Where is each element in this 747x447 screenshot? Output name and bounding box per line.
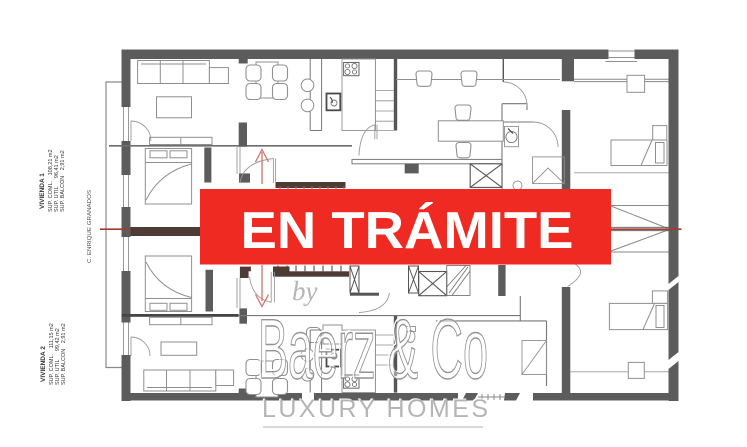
svg-text:Baerz & Co: Baerz & Co [258, 302, 488, 396]
svg-text:EN TRÁMITE: EN TRÁMITE [241, 202, 574, 260]
svg-text:SUP. BALCON 2,91 m2: SUP. BALCON 2,91 m2 [61, 323, 67, 385]
svg-text:SUP. BALCON 2,91 m2: SUP. BALCON 2,91 m2 [60, 150, 66, 212]
svg-text:C. ENRIQUE GRANADOS: C. ENRIQUE GRANADOS [87, 190, 93, 263]
svg-text:VIVIENDA 1: VIVIENDA 1 [39, 173, 46, 209]
svg-text:VIVIENDA 2: VIVIENDA 2 [40, 346, 47, 382]
